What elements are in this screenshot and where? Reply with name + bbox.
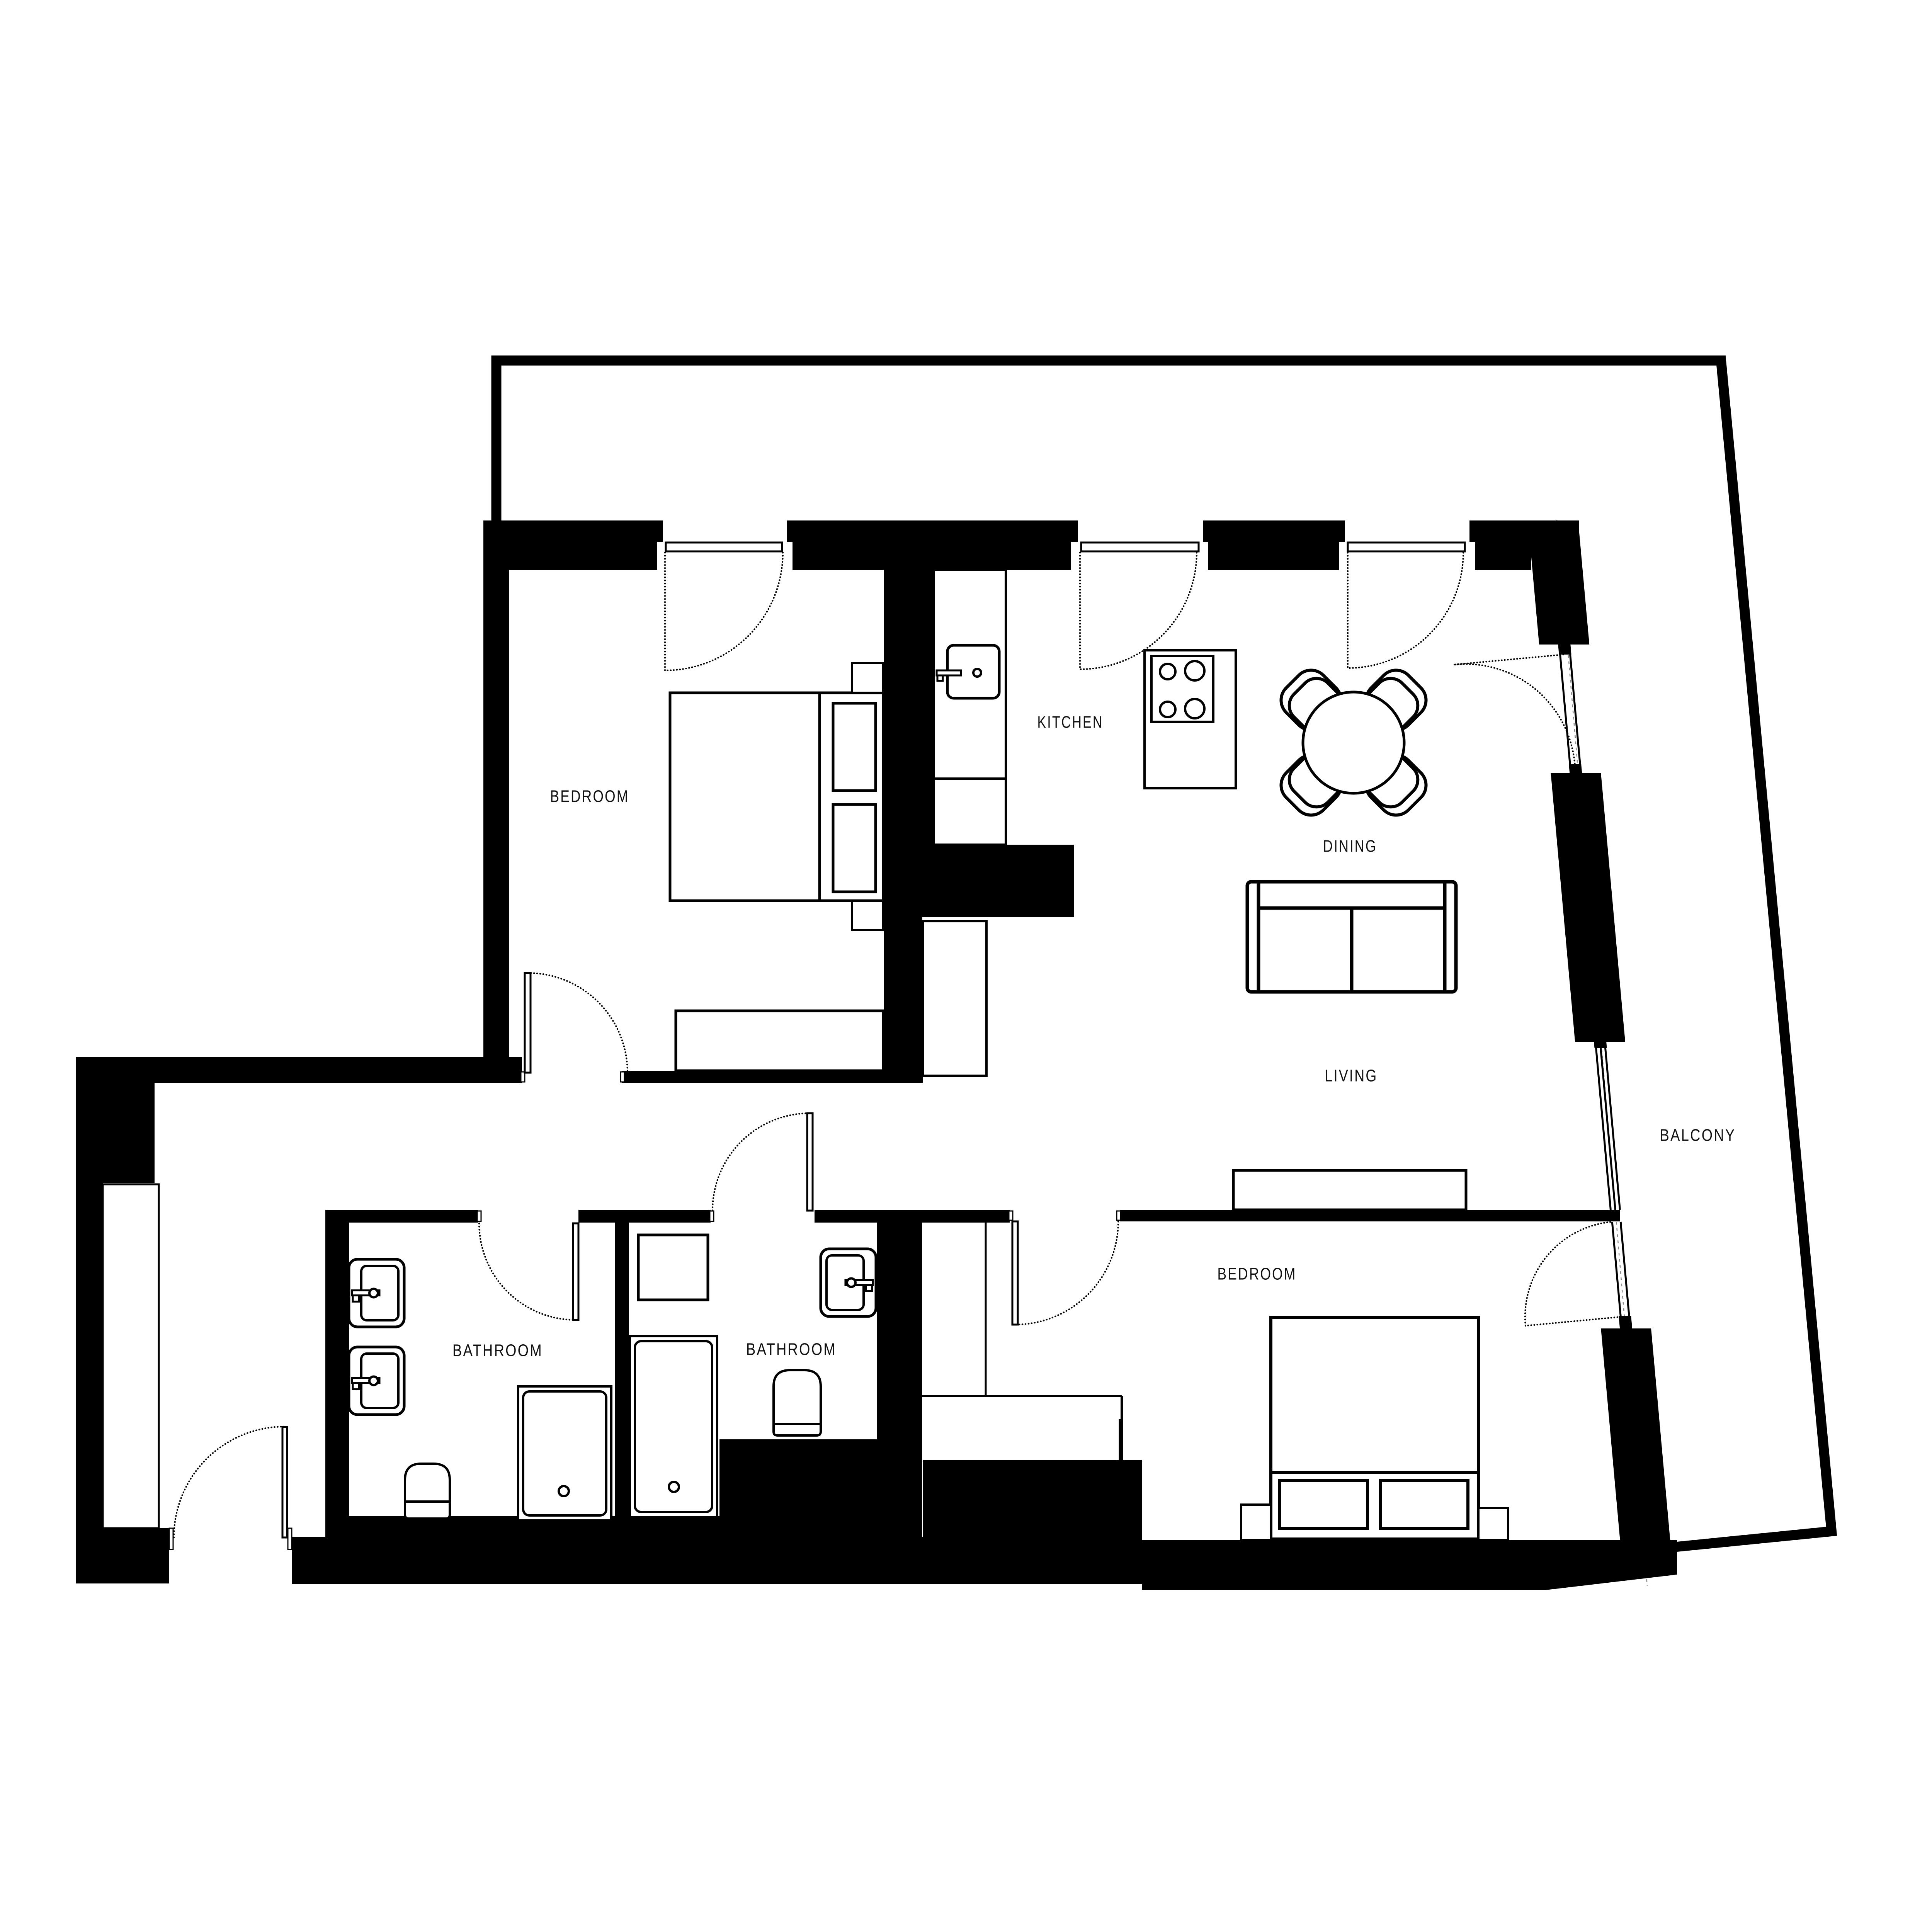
svg-text:LIVING: LIVING	[1325, 1066, 1378, 1085]
svg-text:DINING: DINING	[1323, 837, 1377, 856]
svg-text:BEDROOM: BEDROOM	[1218, 1265, 1297, 1284]
svg-text:BATHROOM: BATHROOM	[746, 1340, 837, 1359]
svg-text:BATHROOM: BATHROOM	[452, 1341, 543, 1360]
svg-text:KITCHEN: KITCHEN	[1037, 713, 1104, 732]
svg-text:BALCONY: BALCONY	[1660, 1126, 1736, 1145]
svg-text:BEDROOM: BEDROOM	[550, 787, 629, 806]
